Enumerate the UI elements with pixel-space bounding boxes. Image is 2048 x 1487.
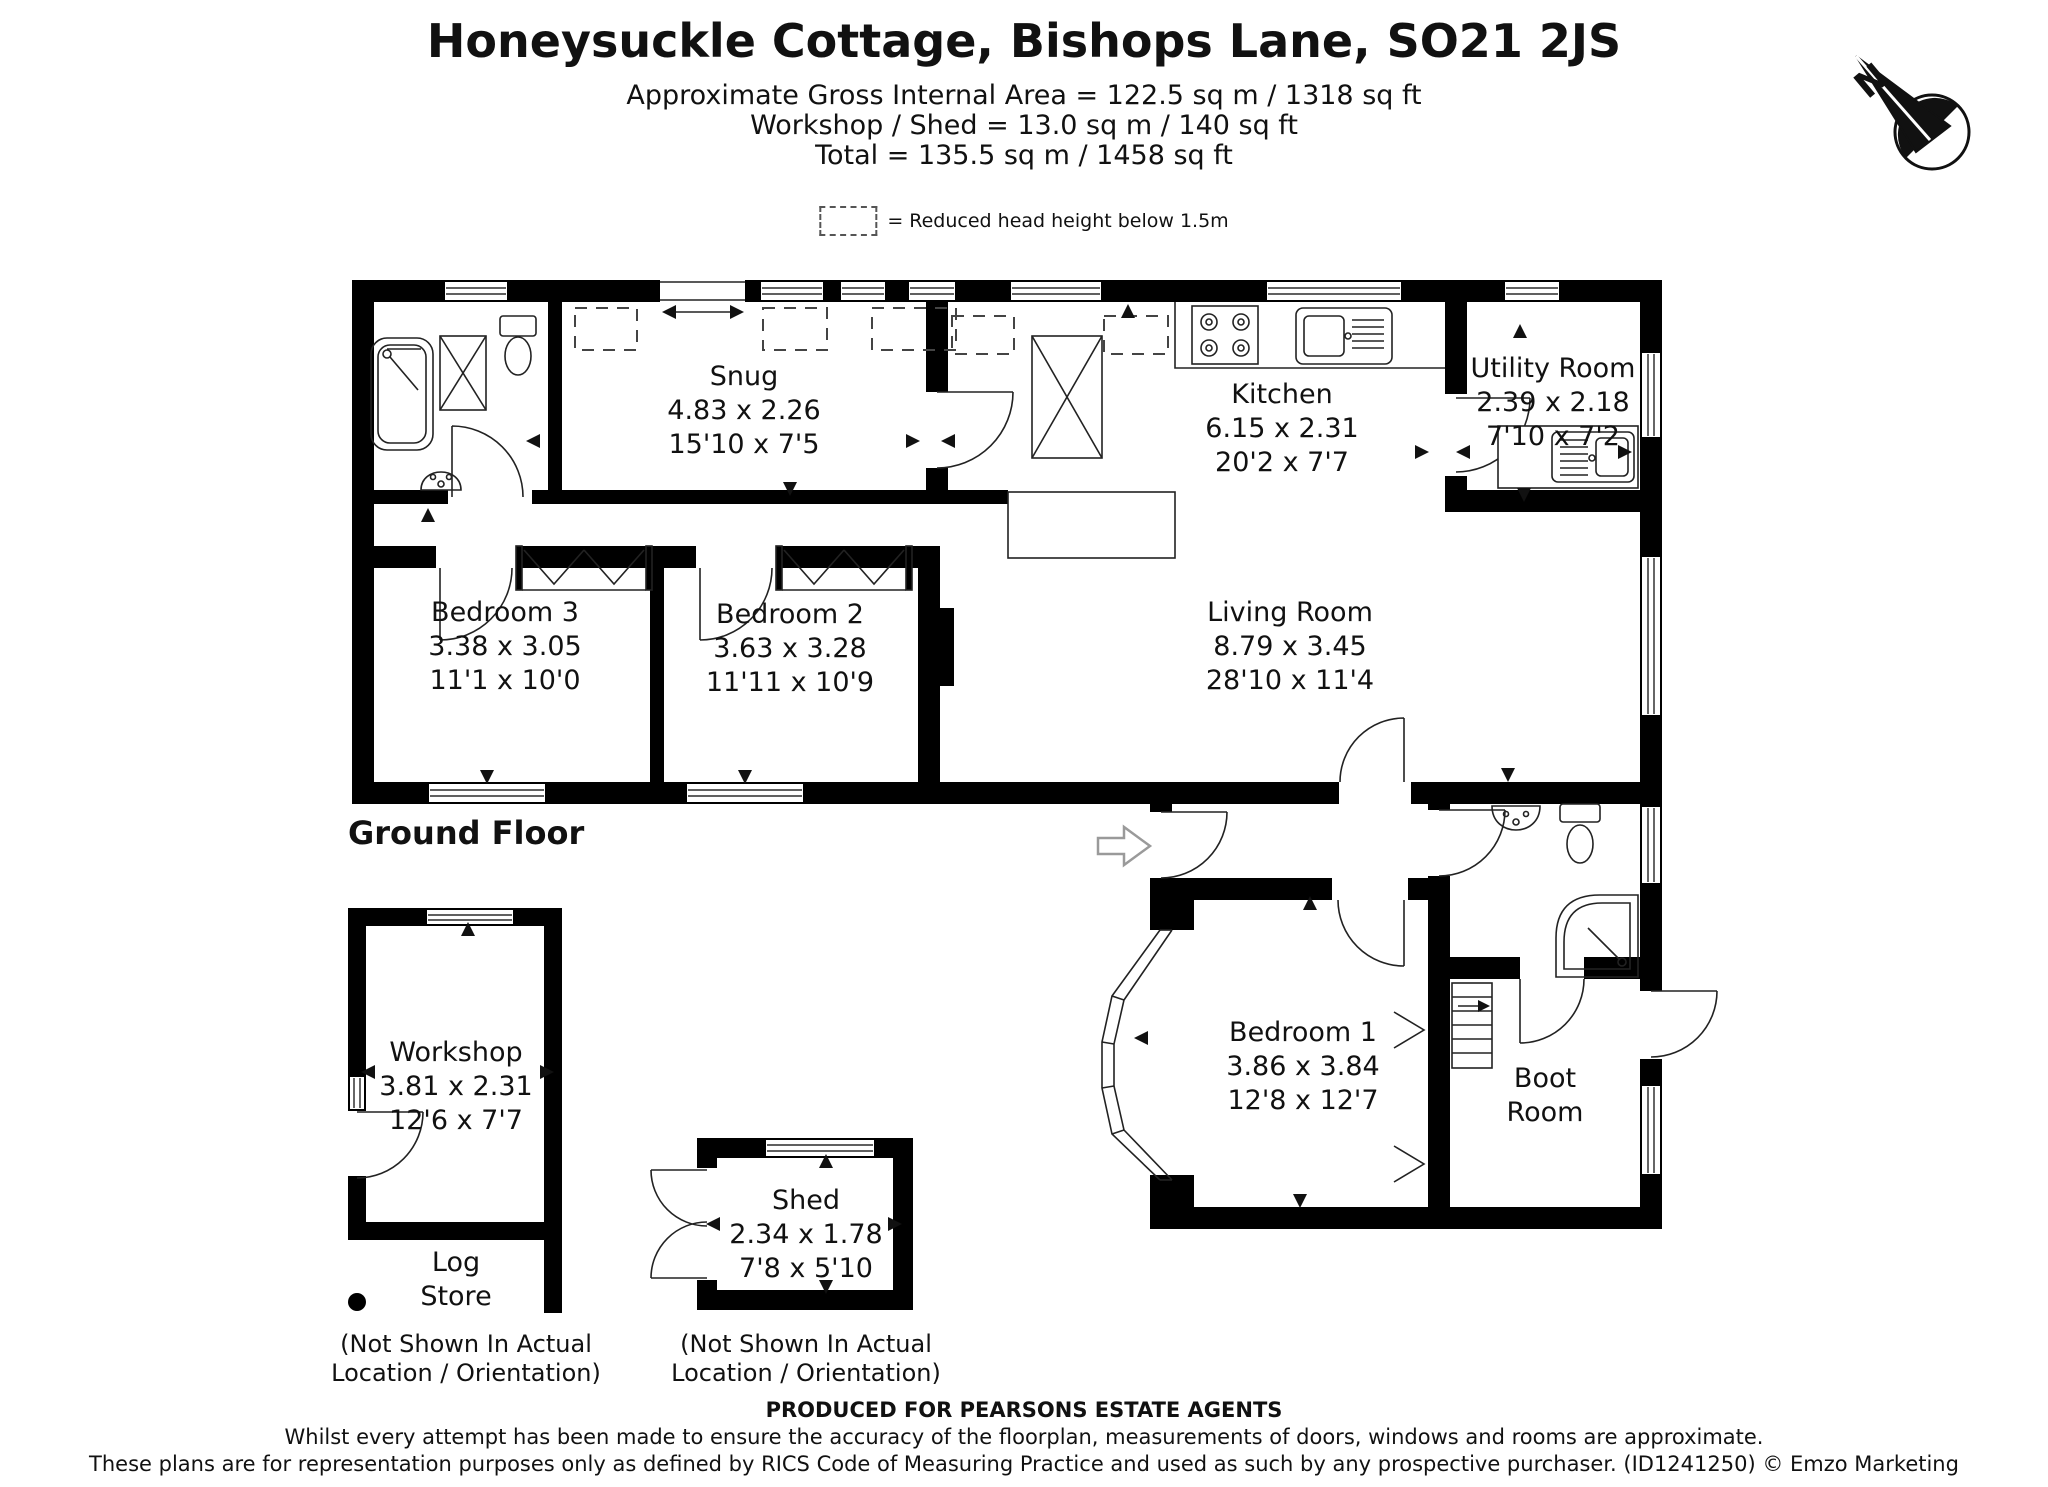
room-label-log-store: Log Store [306,1246,606,1314]
shower-room-fixtures [1452,804,1638,1068]
room-label-kitchen: Kitchen 6.15 x 2.31 20'2 x 7'7 [1132,378,1432,480]
ground-floor-label: Ground Floor [348,814,584,852]
boot-room-exterior-door [1651,991,1717,1057]
reduced-head-height-swatch [819,206,877,236]
room-label-snug: Snug 4.83 x 2.26 15'10 x 7'5 [594,360,894,462]
bath-icon [371,338,433,450]
breakfast-bar [1008,492,1175,558]
room-label-shed: Shed 2.34 x 1.78 7'8 x 5'10 [656,1184,956,1286]
boot-room-inner-door [1520,979,1584,1043]
airing-cupboard-icon [440,336,486,410]
footer-disclaimer-1: Whilst every attempt has been made to en… [0,1425,2048,1449]
legend: = Reduced head height below 1.5m [819,206,1228,236]
reduced-head-height-areas [575,308,1168,354]
bathroom-door [452,426,523,497]
entry-arrow-icon [1098,827,1150,865]
kitchen-cupboard-icon [1032,336,1102,458]
kitchen-sink-icon [1296,308,1392,364]
bathroom-sink-icon [421,472,461,490]
room-label-bedroom2: Bedroom 2 3.63 x 3.28 11'11 x 10'9 [640,598,940,700]
room-label-utility: Utility Room 2.39 x 2.18 7'10 x 7'2 [1403,352,1703,454]
room-label-workshop: Workshop 3.81 x 2.31 12'6 x 7'7 [306,1036,606,1138]
legend-label: = Reduced head height below 1.5m [887,210,1228,232]
bathroom-fixtures [371,316,536,490]
hob-icon [1192,306,1258,364]
workshop-not-shown-note: (Not Shown In Actual Location / Orientat… [286,1330,646,1388]
shed-not-shown-note: (Not Shown In Actual Location / Orientat… [626,1330,986,1388]
toilet-icon [500,316,536,375]
floorplan-page: N Honeysuckle Cottage, Bishops Lane, SO2… [0,0,2048,1487]
footer-produced-for: PRODUCED FOR PEARSONS ESTATE AGENTS [0,1398,2048,1422]
bedroom1-door [1338,900,1404,966]
gross-area-line: Approximate Gross Internal Area = 122.5 … [0,80,2048,111]
total-area-line: Total = 135.5 sq m / 1458 sq ft [0,140,2048,171]
snug-kitchen-door [937,392,1013,468]
front-door [1161,812,1227,878]
room-label-living-room: Living Room 8.79 x 3.45 28'10 x 11'4 [1140,596,1440,698]
room-label-boot-room: Boot Room [1395,1062,1695,1130]
page-title: Honeysuckle Cottage, Bishops Lane, SO21 … [0,14,2048,68]
shower-toilet-icon [1560,804,1600,863]
living-room-door [1340,718,1404,782]
stairs-icon [1452,983,1492,1068]
room-label-bedroom3: Bedroom 3 3.38 x 3.05 11'1 x 10'0 [355,596,655,698]
footer-disclaimer-2: These plans are for representation purpo… [0,1452,2048,1476]
workshop-shed-line: Workshop / Shed = 13.0 sq m / 140 sq ft [0,110,2048,141]
